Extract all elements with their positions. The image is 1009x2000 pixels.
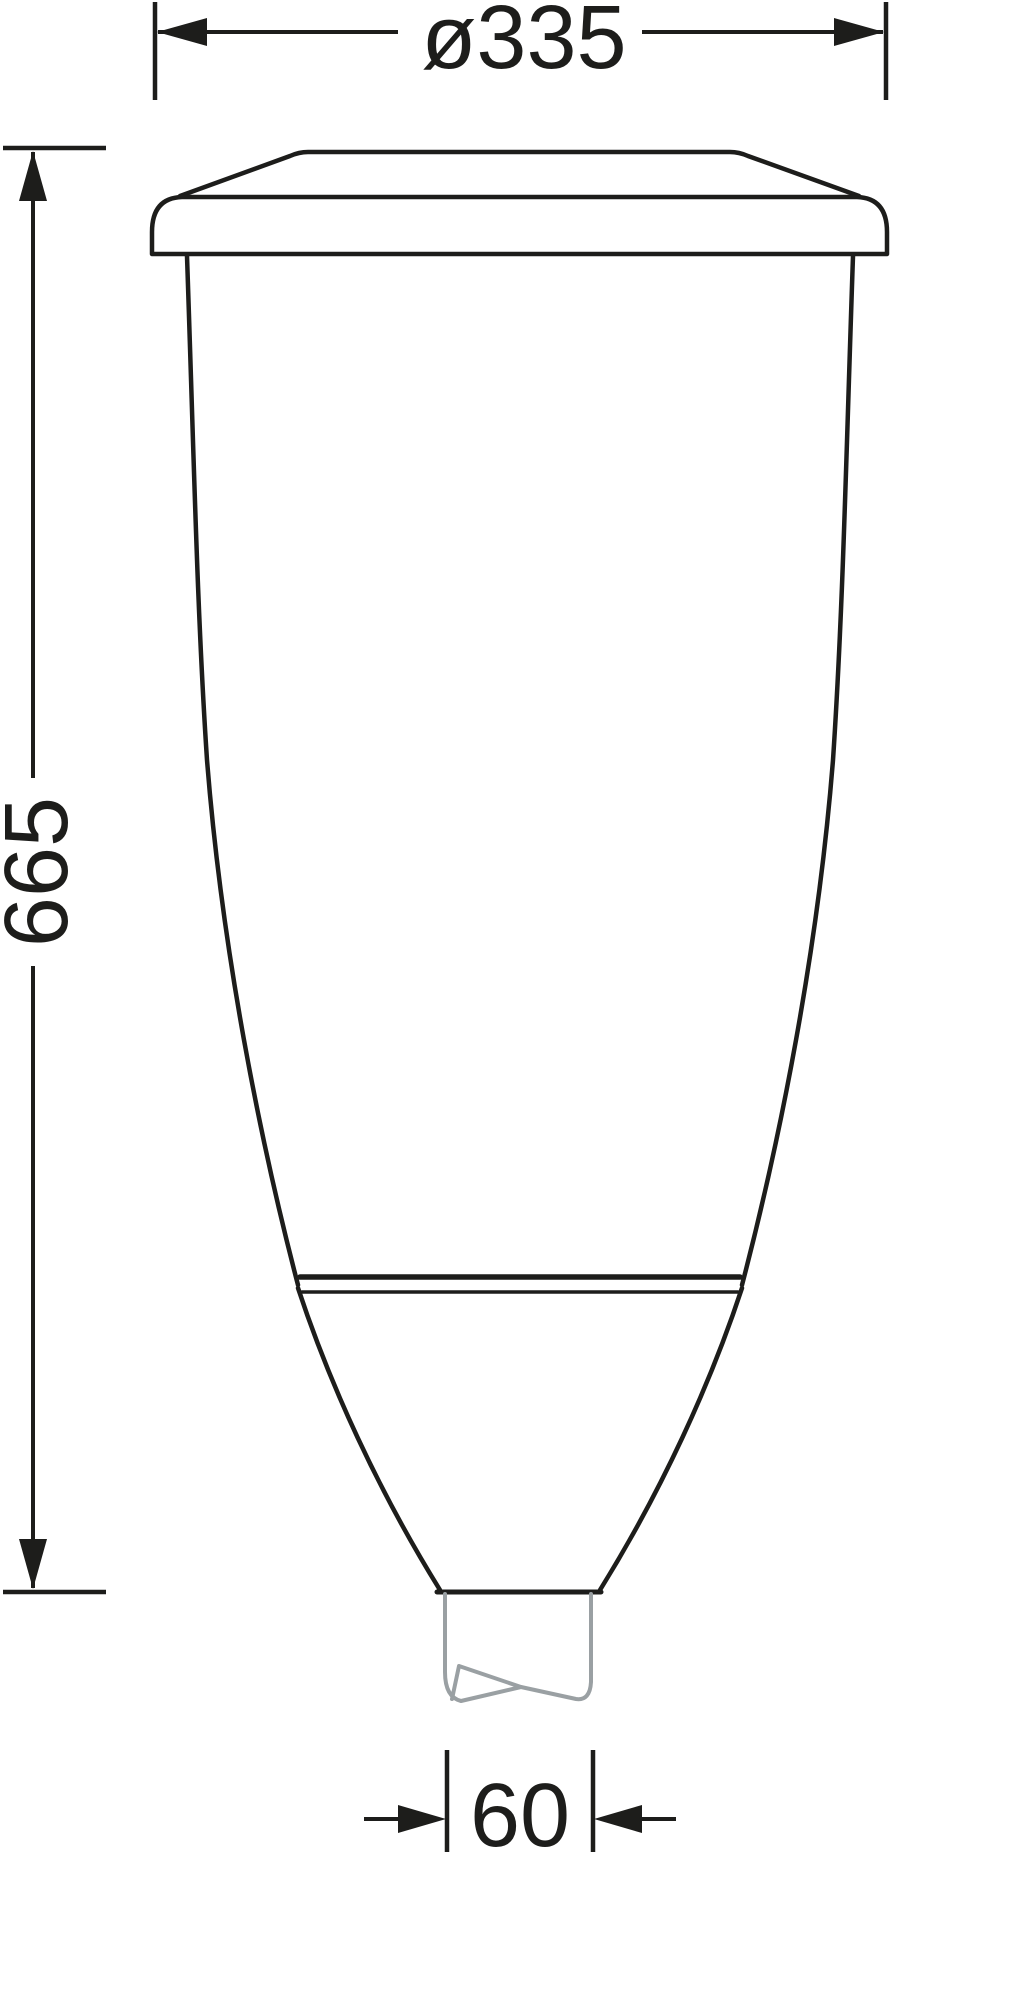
diameter-label: ø335 — [421, 0, 626, 88]
arrowhead-down-icon — [19, 1539, 47, 1589]
product-outline — [152, 152, 887, 1592]
body-right-edge — [742, 256, 853, 1285]
cap-top-outline — [180, 152, 859, 196]
diameter-dimension: ø335 — [155, 0, 886, 100]
arrowhead-right-icon — [834, 18, 884, 46]
pole-spigot — [445, 1594, 591, 1701]
height-label: 665 — [0, 797, 87, 947]
funnel-left-edge — [298, 1288, 440, 1590]
spigot-width-dimension: 60 — [364, 1750, 676, 1866]
drawing-canvas: ø335 665 60 — [0, 0, 1009, 2000]
arrowhead-inward-right-icon — [398, 1805, 446, 1833]
arrowhead-left-icon — [157, 18, 207, 46]
spigot-width-label: 60 — [470, 1766, 570, 1866]
dimension-drawing: ø335 665 60 — [0, 0, 1009, 2000]
height-dimension: 665 — [0, 148, 106, 1592]
arrowhead-inward-left-icon — [594, 1805, 642, 1833]
arrowhead-up-icon — [19, 151, 47, 201]
cap-rim-outline — [152, 197, 887, 254]
body-left-edge — [187, 256, 298, 1285]
funnel-right-edge — [600, 1288, 742, 1590]
